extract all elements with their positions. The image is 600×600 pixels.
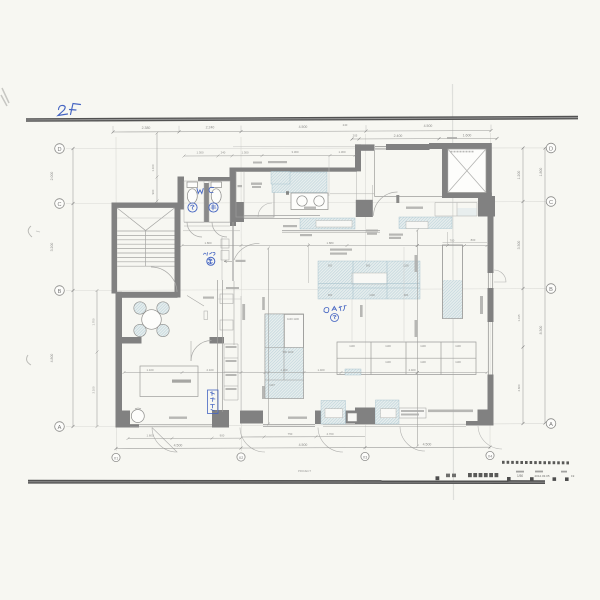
svg-text:A: A xyxy=(58,425,62,431)
svg-text:1.700: 1.700 xyxy=(92,318,96,325)
svg-text:3.300: 3.300 xyxy=(292,150,299,154)
svg-text:1.800: 1.800 xyxy=(205,241,212,245)
svg-text:2.400: 2.400 xyxy=(394,134,403,138)
svg-text:1100: 1100 xyxy=(455,360,461,364)
svg-text:2.100: 2.100 xyxy=(207,368,214,372)
svg-text:1.300: 1.300 xyxy=(242,150,249,154)
svg-text:1100: 1100 xyxy=(385,360,391,364)
svg-text:2.380: 2.380 xyxy=(142,126,151,130)
svg-text:3.200: 3.200 xyxy=(50,243,54,252)
svg-text:900: 900 xyxy=(366,264,371,268)
svg-text:8.300: 8.300 xyxy=(539,326,543,335)
svg-text:19: 19 xyxy=(571,474,575,478)
svg-text:1.300: 1.300 xyxy=(339,150,346,154)
svg-text:1100: 1100 xyxy=(420,360,426,364)
svg-text:3.100: 3.100 xyxy=(92,386,96,393)
svg-text:1.415: 1.415 xyxy=(517,314,521,321)
svg-text:1.200: 1.200 xyxy=(517,171,521,180)
svg-text:1.800: 1.800 xyxy=(539,168,543,177)
svg-text:X1: X1 xyxy=(114,456,118,460)
svg-text:C: C xyxy=(549,200,553,206)
svg-text:900: 900 xyxy=(404,293,409,297)
svg-text:4.400: 4.400 xyxy=(409,368,416,372)
svg-text:3.300: 3.300 xyxy=(517,241,521,250)
svg-text:4.500: 4.500 xyxy=(424,124,433,128)
svg-text:1.100: 1.100 xyxy=(147,368,154,372)
svg-text:1100: 1100 xyxy=(385,344,391,348)
svg-text:2.000: 2.000 xyxy=(50,172,54,181)
svg-text:1.100: 1.100 xyxy=(281,368,288,372)
svg-text:900: 900 xyxy=(328,264,333,268)
svg-text:X2: X2 xyxy=(239,456,243,460)
svg-text:1.600: 1.600 xyxy=(147,434,154,438)
svg-text:1100: 1100 xyxy=(369,293,375,297)
svg-text:1100: 1100 xyxy=(403,264,409,268)
svg-text:1/50: 1/50 xyxy=(517,474,523,478)
svg-text:700: 700 xyxy=(450,238,455,242)
svg-text:750: 750 xyxy=(288,432,293,436)
svg-text:4.500: 4.500 xyxy=(423,443,432,447)
svg-text:1.300: 1.300 xyxy=(197,151,204,155)
svg-text:1.600: 1.600 xyxy=(463,133,472,137)
svg-text:C: C xyxy=(57,202,61,208)
svg-text:900: 900 xyxy=(151,189,155,194)
svg-text:X3: X3 xyxy=(363,455,367,459)
svg-text:900: 900 xyxy=(220,433,225,437)
svg-text:205: 205 xyxy=(353,133,358,137)
svg-text:4.500: 4.500 xyxy=(299,125,308,129)
svg-text:PROJECT: PROJECT xyxy=(298,469,311,473)
svg-text:1107: 1107 xyxy=(269,383,275,387)
svg-text:4.500: 4.500 xyxy=(299,443,308,447)
svg-text:1.400: 1.400 xyxy=(318,368,325,372)
svg-text:240: 240 xyxy=(221,150,226,154)
svg-text:1100: 1100 xyxy=(455,344,461,348)
svg-text:240: 240 xyxy=(343,123,348,127)
svg-text:500 1100: 500 1100 xyxy=(283,350,294,354)
svg-text:A: A xyxy=(549,422,553,428)
svg-text:900: 900 xyxy=(328,293,333,297)
svg-text:1100: 1100 xyxy=(420,344,426,348)
svg-text:X4: X4 xyxy=(488,454,492,458)
svg-text:2012.03.05: 2012.03.05 xyxy=(535,474,550,478)
svg-text:1.100: 1.100 xyxy=(151,164,155,171)
svg-text:800: 800 xyxy=(471,238,476,242)
svg-text:B: B xyxy=(549,287,553,293)
svg-text:4.500: 4.500 xyxy=(174,444,183,448)
svg-text:4.700: 4.700 xyxy=(327,432,334,436)
svg-text:B: B xyxy=(58,289,62,295)
svg-text:D: D xyxy=(549,146,553,152)
svg-text:4.860: 4.860 xyxy=(517,384,521,391)
svg-text:D: D xyxy=(57,147,61,153)
svg-text:2.240: 2.240 xyxy=(206,126,215,130)
svg-text:4.800: 4.800 xyxy=(50,354,54,363)
svg-text:1100 1100: 1100 1100 xyxy=(287,317,299,321)
svg-text:1100: 1100 xyxy=(349,344,355,348)
svg-text:1.880: 1.880 xyxy=(327,241,334,245)
